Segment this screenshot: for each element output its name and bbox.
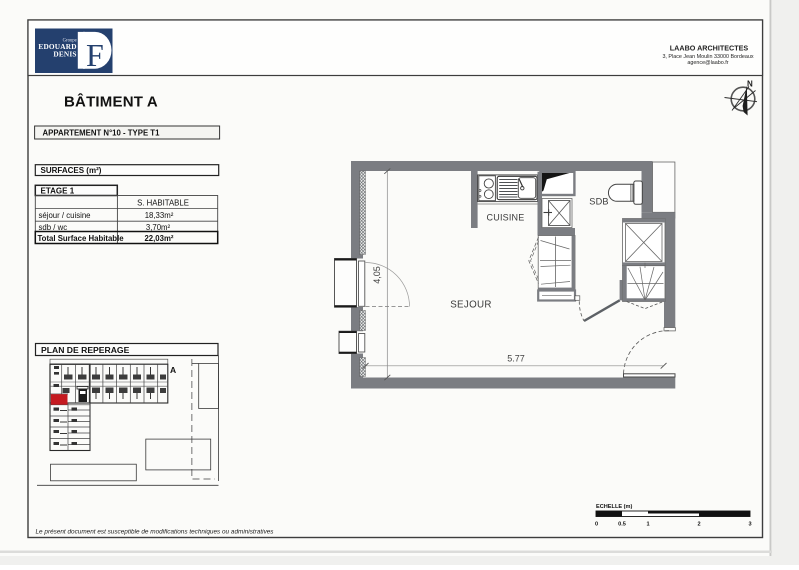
svg-text:3: 3 bbox=[748, 522, 751, 528]
svg-text:séjour / cuisine: séjour / cuisine bbox=[39, 211, 91, 220]
svg-text:APPARTEMENT N°10 - TYPE T1: APPARTEMENT N°10 - TYPE T1 bbox=[43, 128, 161, 137]
svg-text:A: A bbox=[170, 365, 176, 375]
svg-text:4,05: 4,05 bbox=[372, 266, 382, 284]
svg-text:DENIS: DENIS bbox=[53, 50, 76, 59]
svg-text:S. HABITABLE: S. HABITABLE bbox=[137, 198, 189, 207]
svg-text:Le présent document est suscep: Le présent document est susceptible de m… bbox=[36, 529, 275, 536]
svg-text:ETAGE 1: ETAGE 1 bbox=[41, 186, 75, 195]
svg-text:ECHELLE (m): ECHELLE (m) bbox=[596, 504, 632, 510]
svg-text:PLAN DE REPERAGE: PLAN DE REPERAGE bbox=[41, 345, 130, 355]
svg-text:CUISINE: CUISINE bbox=[487, 213, 525, 223]
svg-text:22,03m²: 22,03m² bbox=[144, 234, 173, 243]
svg-text:N: N bbox=[747, 80, 753, 89]
svg-text:agence@laabo.fr: agence@laabo.fr bbox=[687, 60, 728, 66]
svg-text:LAABO ARCHITECTES: LAABO ARCHITECTES bbox=[670, 44, 749, 53]
svg-text:3,70m²: 3,70m² bbox=[146, 223, 171, 232]
svg-text:SEJOUR: SEJOUR bbox=[450, 300, 492, 311]
svg-text:BÂTIMENT A: BÂTIMENT A bbox=[64, 93, 158, 111]
svg-text:SDB: SDB bbox=[589, 197, 609, 207]
svg-text:18,33m²: 18,33m² bbox=[145, 211, 174, 220]
svg-text:2: 2 bbox=[697, 522, 700, 528]
svg-text:F: F bbox=[86, 37, 104, 73]
svg-text:sdb / wc: sdb / wc bbox=[39, 223, 68, 232]
svg-text:SURFACES (m²): SURFACES (m²) bbox=[41, 166, 102, 175]
svg-text:Total Surface Habitable: Total Surface Habitable bbox=[38, 234, 125, 243]
svg-text:1: 1 bbox=[646, 522, 649, 528]
svg-text:5.77: 5.77 bbox=[507, 354, 525, 364]
svg-text:0.5: 0.5 bbox=[618, 522, 626, 528]
svg-text:0: 0 bbox=[595, 522, 598, 528]
svg-text:3, Place Jean Moulin 33000 Bo: 3, Place Jean Moulin 33000 Bordeaux bbox=[662, 54, 753, 60]
